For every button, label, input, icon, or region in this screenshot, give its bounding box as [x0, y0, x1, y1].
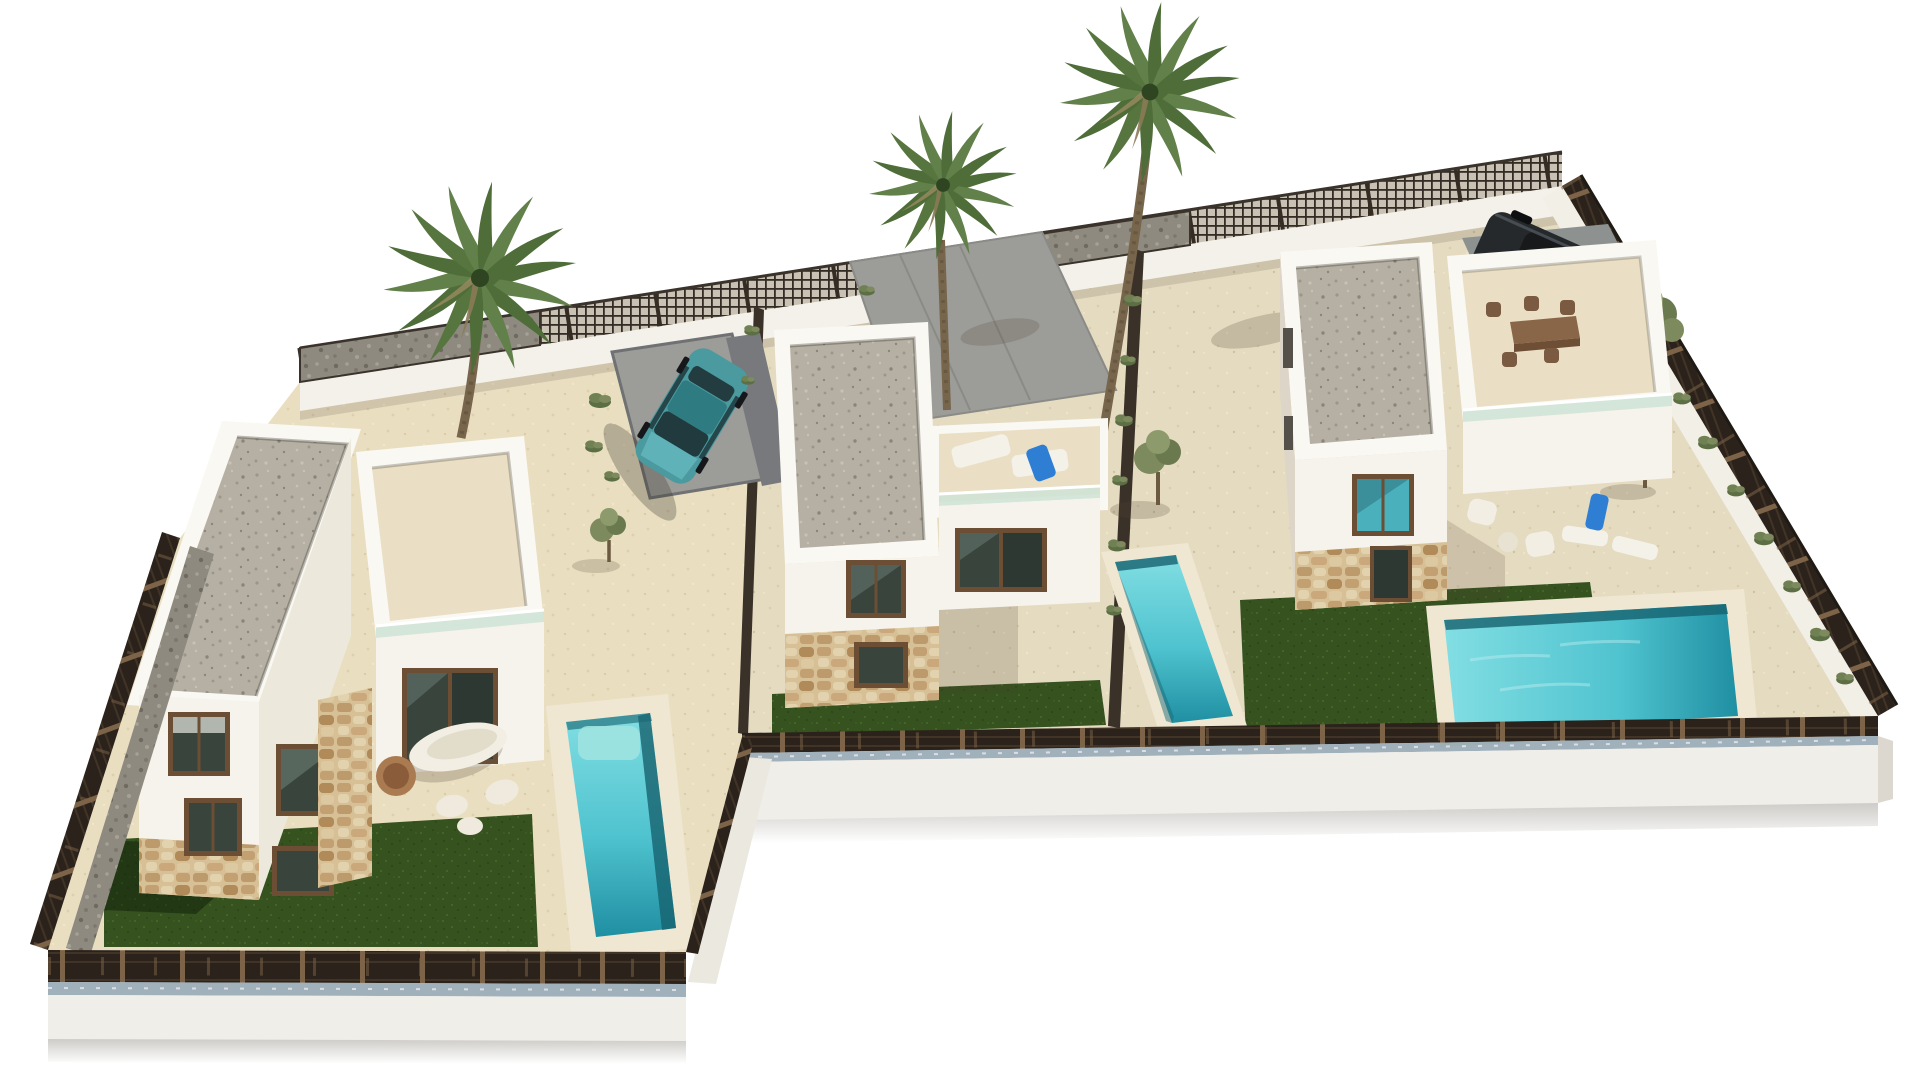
- right-villa-window-upper: [1352, 474, 1414, 536]
- bowl-chair-seat: [383, 763, 409, 789]
- dining-chair: [1486, 302, 1501, 317]
- right-villa-side-window: [1283, 328, 1293, 368]
- left-pool-steps: [578, 726, 640, 760]
- middle-villa-window-lower: [854, 642, 908, 688]
- left-villa-window-lower: [184, 798, 242, 856]
- left-plinth-shadow: [48, 1039, 686, 1064]
- left-wing-roof-floor: [372, 453, 526, 621]
- dining-chair: [1524, 296, 1539, 311]
- left-villa-stone-column: [318, 688, 372, 888]
- middle-wing-sliding-window: [955, 528, 1047, 592]
- render-canvas: [0, 0, 1920, 1080]
- middle-villa-gravel-roof: [790, 338, 924, 548]
- left-villa-window-upper: [168, 712, 230, 776]
- right-villa-gravel-roof: [1296, 258, 1432, 444]
- left-plinth: [48, 995, 686, 1041]
- side-table: [1498, 532, 1518, 552]
- main-plot-front-fence: [742, 716, 1893, 843]
- dining-chair: [1544, 348, 1559, 363]
- dining-chair: [1560, 300, 1575, 315]
- dining-chair: [1502, 352, 1517, 367]
- left-footing-stripe: [48, 982, 686, 997]
- middle-villa-window-upper: [846, 560, 906, 618]
- pebble-pouf: [457, 817, 483, 835]
- right-villa-door: [1370, 546, 1412, 602]
- main-plinth-cap: [1878, 736, 1893, 803]
- right-villa-side-window: [1284, 416, 1293, 450]
